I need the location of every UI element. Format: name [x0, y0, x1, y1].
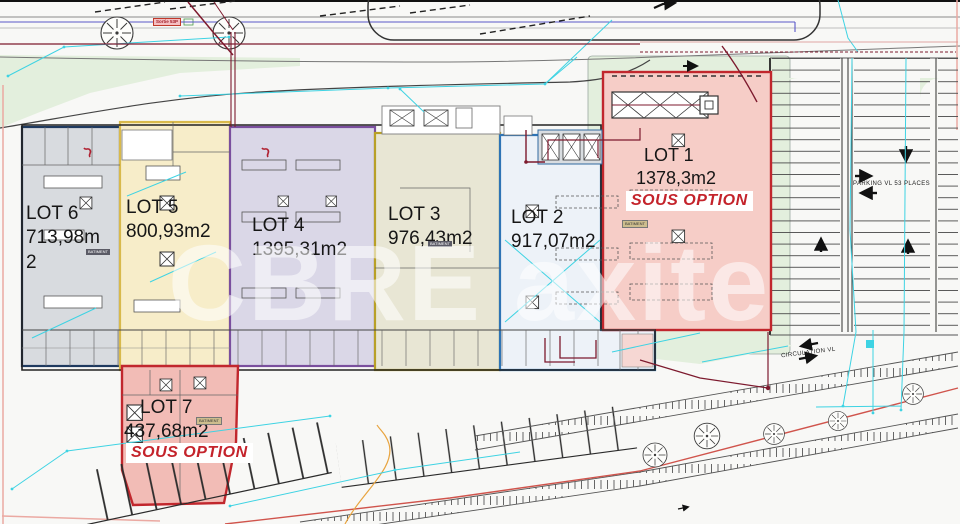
parking-label: PARKING VL 53 PLACES — [853, 181, 930, 187]
lot6-name: LOT 6 — [26, 202, 106, 226]
lot6-label: LOT 6 713,98m2 — [26, 202, 106, 275]
lot7-sous-option-label: SOUS OPTION — [126, 443, 253, 463]
lot2-area: 917,07m2 — [511, 230, 596, 254]
batiment-badge-lot7: BATIMENT — [196, 417, 222, 425]
lot2-name: LOT 2 — [511, 206, 596, 230]
lot1-label: LOT 1 1378,3m2 — [636, 144, 716, 190]
lot5-label: LOT 5 800,93m2 — [126, 196, 211, 245]
lot5-area: 800,93m2 — [126, 220, 211, 244]
parking-area — [770, 58, 958, 335]
boundary-red-line — [225, 388, 958, 524]
lot4-label: LOT 4 1395,31m2 — [252, 214, 347, 263]
lot1-sous-option-label: SOUS OPTION — [626, 191, 753, 211]
lot1-area: 1378,3m2 — [636, 167, 716, 190]
lot2-label: LOT 2 917,07m2 — [511, 206, 596, 255]
batiment-badge-lot3: BATIMENT — [428, 241, 452, 247]
lot3-area: 976,43m2 — [388, 227, 473, 251]
batiment-badge-lot1: BATIMENT — [622, 220, 648, 228]
exit-sign: Sortie 53P — [153, 18, 181, 26]
lot5-name: LOT 5 — [126, 196, 211, 220]
lot1-name: LOT 1 — [644, 144, 716, 167]
lot4-name: LOT 4 — [252, 214, 347, 238]
batiment-badge-lot6: BATIMENT — [86, 249, 110, 255]
lot3-name: LOT 3 — [388, 203, 473, 227]
lot4-area: 1395,31m2 — [252, 238, 347, 262]
site-plan-page: LOT 6 713,98m2 LOT 5 800,93m2 LOT 4 1395… — [0, 0, 960, 524]
